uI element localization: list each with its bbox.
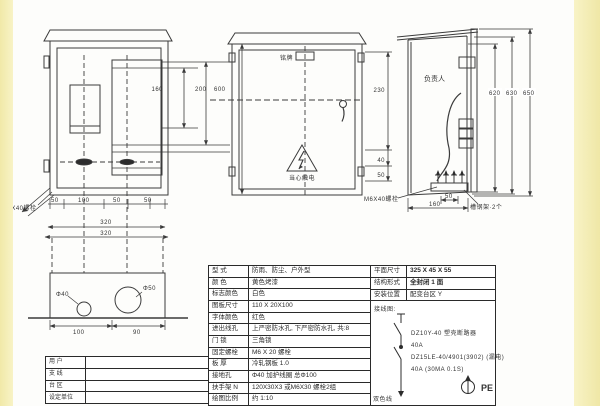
meter-terminal-icon: [120, 159, 134, 164]
dim-40: 40: [377, 158, 385, 164]
wire-label: 双色线: [373, 395, 393, 403]
hole-small-label: Φ40: [56, 292, 69, 298]
dim-600: 600: [214, 87, 226, 93]
spec-value: 冷轧钢板 1.0: [249, 359, 370, 370]
spec-value: 约 1:10: [249, 394, 370, 405]
breaker-switch-icon: [394, 323, 401, 335]
dim-620: 620: [489, 91, 501, 97]
spec-label: 板 厚: [209, 359, 249, 370]
spec-label: 门 锁: [209, 336, 249, 347]
breaker1-model: DZ10Y-40 塑壳断路器: [411, 329, 476, 337]
dim-50-front: 50: [377, 173, 385, 179]
dim-200: 200: [195, 87, 207, 93]
technical-drawing-page: 160 200 600 50 100 50 50 320 320 M6X40螺栓…: [0, 0, 600, 406]
spec-label: 扶手架 N: [209, 383, 249, 394]
dim-50-side: 50: [445, 194, 453, 200]
wiring-diagram-cell: 接线图: DZ10Y-40 塑壳断路器 40A DZ15LE-40/4901(3…: [371, 301, 495, 405]
anchor-bolts-icon: [431, 170, 468, 191]
wiring-heading: 接线图:: [374, 305, 396, 313]
left-view: [22, 30, 242, 273]
user-row-value: [86, 357, 221, 368]
dim-650: 650: [523, 91, 535, 97]
spec-label: 绘图比例: [209, 394, 249, 405]
spec-value: 110 X 20X100: [249, 301, 370, 312]
user-row-label: 支 线: [46, 369, 86, 380]
spec-label: 安装位置: [371, 290, 407, 301]
spec-table: 型 式防雨、防尘、户外型 颜 色黄色烤漆 标志颜色白色 图板尺寸110 X 20…: [208, 265, 496, 406]
dim-90: 90: [133, 330, 141, 336]
hinge-icon: [358, 167, 364, 176]
spec-value: 全封闭 1 面: [407, 278, 495, 289]
spec-value: 红色: [249, 313, 370, 324]
nameplate-label: 铭牌: [280, 54, 293, 62]
user-row-label: 设定单位: [46, 392, 86, 403]
spec-value: M6 X 20 螺栓: [249, 348, 370, 359]
spec-label: 字体颜色: [209, 313, 249, 324]
dim-160-side: 160: [429, 202, 441, 208]
spec-value: Φ40 加护线圈 总Φ100: [249, 371, 370, 382]
table-row: 用 户: [46, 357, 221, 369]
dim-small-2: 50: [113, 198, 121, 204]
spec-label: 结构形式: [371, 278, 407, 289]
breaker-switch-icon: [394, 347, 401, 359]
user-info-table: 用 户 支 线 台 区 设定单位: [45, 356, 222, 404]
meter-panel: [112, 60, 162, 175]
spec-table-right: 平面尺寸325 X 45 X 55 结构形式全封闭 1 面 安装位置配变台区 Y: [371, 266, 495, 405]
spec-label: 进出线孔: [209, 324, 249, 335]
page-margin-left: [0, 0, 13, 406]
spec-label: 平面尺寸: [371, 266, 407, 277]
open-door-panel: [471, 29, 477, 192]
breaker1-rating: 40A: [411, 343, 423, 349]
user-row-value: [86, 381, 221, 392]
dim-320-inner: 320: [100, 220, 112, 226]
bolt-callout-side: M6X40螺栓: [364, 195, 399, 203]
bottom-plate-view: [28, 273, 188, 330]
spec-label: 型 式: [209, 266, 249, 277]
spec-value: 325 X 45 X 55: [407, 266, 495, 277]
spec-value: 防雨、防尘、户外型: [249, 266, 370, 277]
user-row-value: [86, 392, 221, 403]
hinge-icon: [358, 53, 364, 62]
cable-curve: [437, 93, 461, 181]
spec-table-left: 型 式防雨、防尘、户外型 颜 色黄色烤漆 标志颜色白色 图板尺寸110 X 20…: [209, 266, 371, 405]
front-view: [210, 33, 392, 195]
table-row: 台 区: [46, 381, 221, 393]
dim-small-1: 100: [78, 198, 90, 204]
spec-label: 颜 色: [209, 278, 249, 289]
door-lock-icon: [340, 101, 347, 122]
wiring-diagram: 接线图: DZ10Y-40 塑壳断路器 40A DZ15LE-40/4901(3…: [371, 301, 581, 406]
dim-230: 230: [373, 88, 385, 94]
cable-hole-large: [115, 287, 141, 313]
spec-label: 标志颜色: [209, 289, 249, 300]
dim-160: 160: [151, 87, 163, 93]
spec-value: 白色: [249, 289, 370, 300]
dim-small-3: 50: [144, 198, 152, 204]
warning-text: 当心触电: [289, 174, 315, 182]
user-row-label: 用 户: [46, 357, 86, 368]
spec-value: 配变台区 Y: [407, 290, 495, 301]
spec-label: 接地孔: [209, 371, 249, 382]
spec-value: 黄色烤漆: [249, 278, 370, 289]
warning-triangle-icon: [287, 145, 317, 171]
hole-large-label: Φ50: [143, 286, 156, 292]
side-view: [397, 29, 536, 212]
hinge-icon: [44, 56, 49, 68]
dim-small-0: 50: [51, 198, 59, 204]
breaker2-model: DZ15LE-40/4901(3902) (漏电): [411, 353, 504, 361]
user-row-value: [86, 369, 221, 380]
dim-320-outer: 320: [100, 231, 112, 237]
pe-ground-icon: [462, 375, 475, 394]
meter-terminal-icon: [76, 159, 92, 165]
cable-hole-small: [77, 302, 91, 316]
page-margin-right: [574, 0, 600, 406]
spec-label: 图板尺寸: [209, 301, 249, 312]
table-row: 支 线: [46, 369, 221, 381]
dim-630: 630: [506, 91, 518, 97]
side-note: 槽钢架·2个: [470, 203, 502, 211]
spec-value: 120X30X3 或M6X30 螺栓2组: [249, 383, 370, 394]
spec-label: 固定螺栓: [209, 348, 249, 359]
table-row: 设定单位: [46, 392, 221, 403]
dim-100: 100: [73, 330, 85, 336]
user-row-label: 台 区: [46, 381, 86, 392]
spec-value: 三角锁: [249, 336, 370, 347]
breaker2-rating: 40A (30MA 0.1S): [411, 367, 464, 373]
pe-label: PE: [481, 383, 493, 393]
spec-value: 上严密防水孔, 下严密防水孔, 共:8: [249, 324, 370, 335]
person-label: 负责人: [424, 74, 445, 83]
hinge-icon: [44, 160, 49, 172]
